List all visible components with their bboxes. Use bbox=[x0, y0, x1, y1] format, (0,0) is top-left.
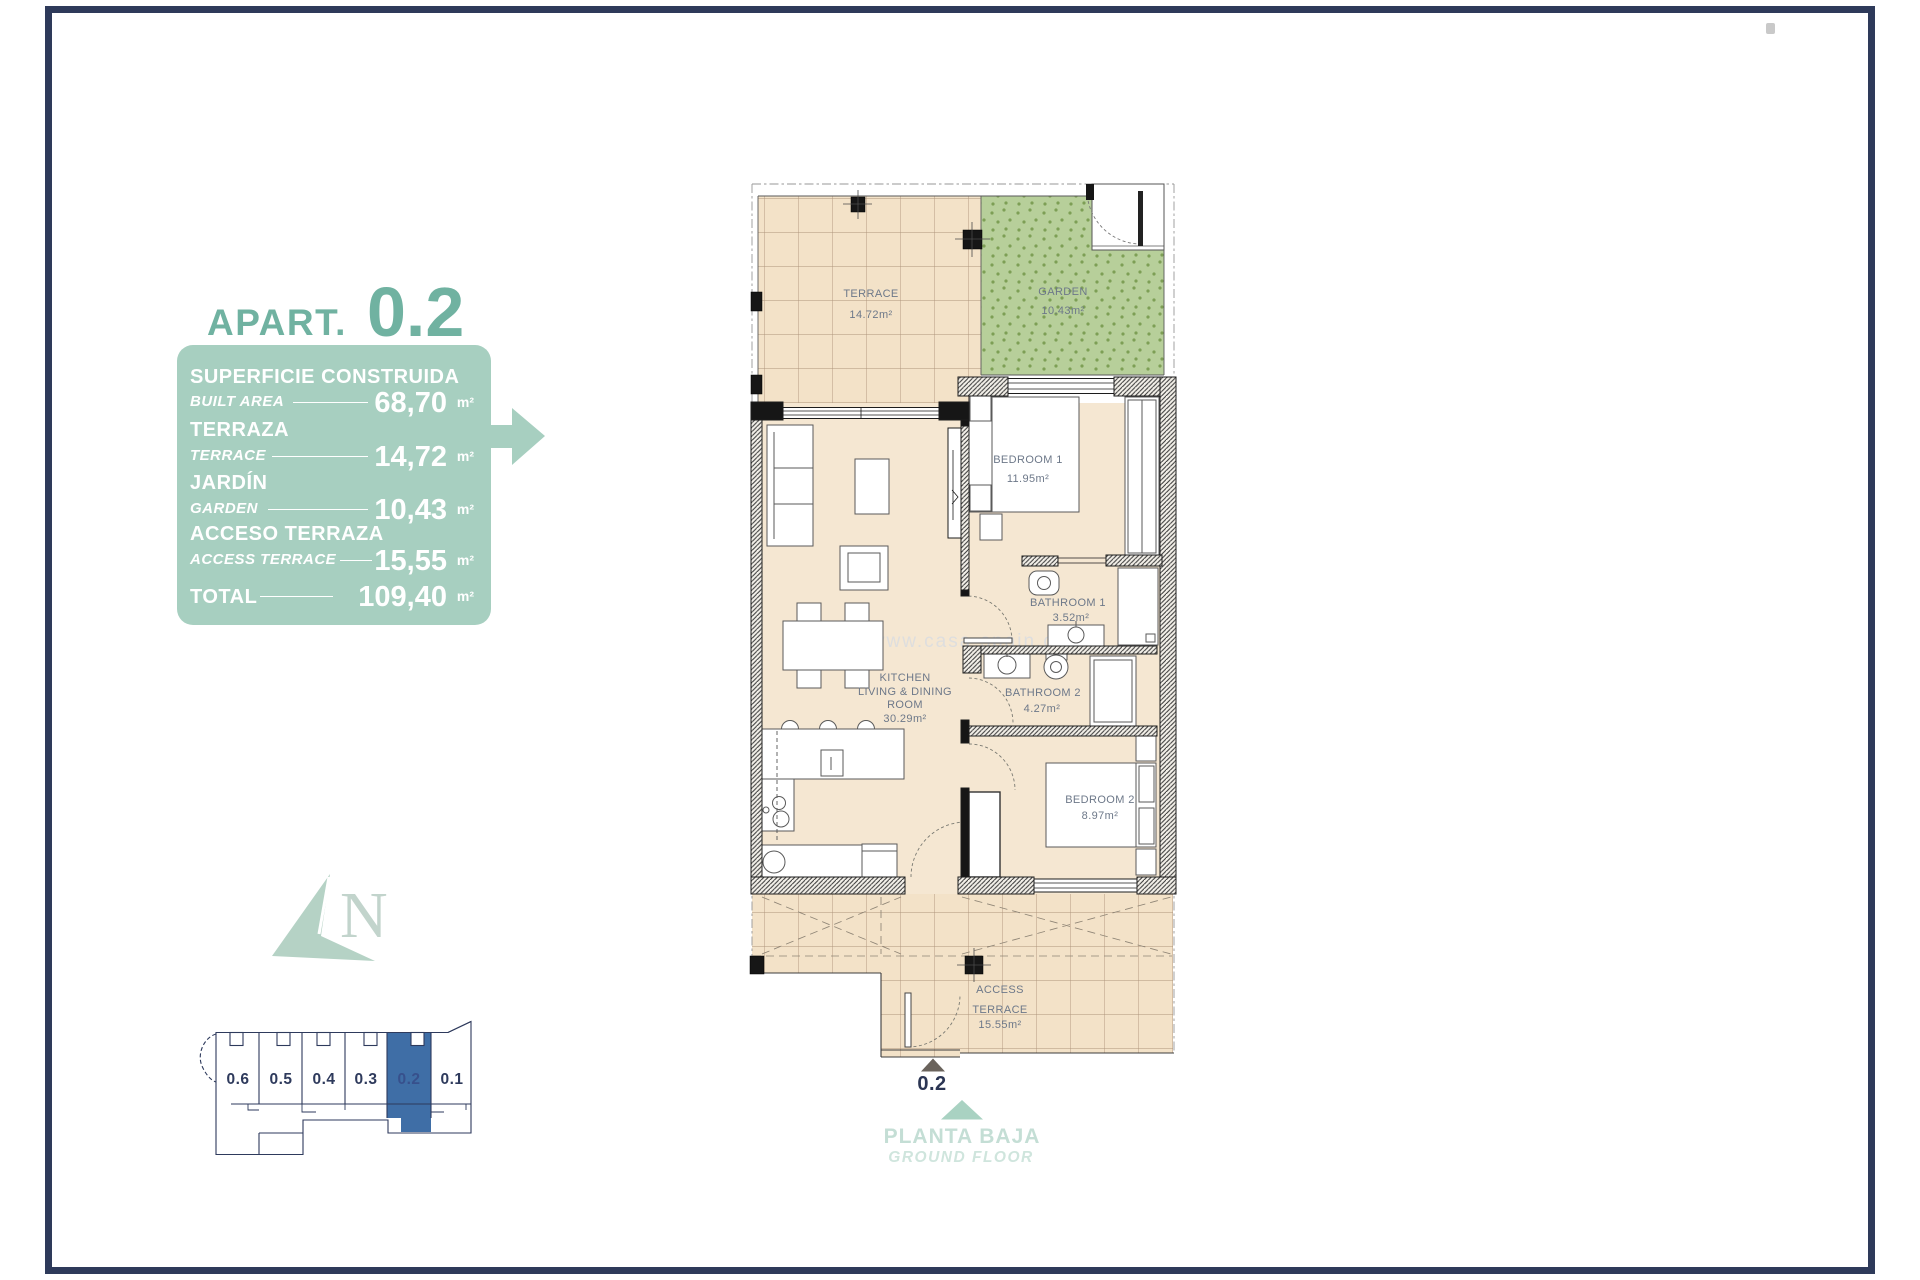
svg-text:0.2: 0.2 bbox=[917, 1073, 946, 1095]
svg-text:0.5: 0.5 bbox=[269, 1071, 292, 1088]
svg-text:0.3: 0.3 bbox=[354, 1071, 377, 1088]
svg-text:BATHROOM 2: BATHROOM 2 bbox=[1005, 687, 1081, 699]
svg-text:TERRACE: TERRACE bbox=[972, 1004, 1027, 1016]
svg-text:GROUND FLOOR: GROUND FLOOR bbox=[888, 1149, 1033, 1166]
svg-text:11.95m²: 11.95m² bbox=[1007, 473, 1049, 485]
svg-text:ACCESS: ACCESS bbox=[976, 984, 1024, 996]
svg-text:14.72m²: 14.72m² bbox=[849, 309, 892, 321]
svg-text:4.27m²: 4.27m² bbox=[1024, 703, 1061, 715]
svg-text:0.1: 0.1 bbox=[440, 1071, 463, 1088]
svg-text:BEDROOM 1: BEDROOM 1 bbox=[993, 454, 1063, 466]
svg-text:0.4: 0.4 bbox=[312, 1071, 335, 1088]
svg-text:GARDEN: GARDEN bbox=[1038, 286, 1087, 298]
svg-text:30.29m²: 30.29m² bbox=[883, 713, 926, 725]
svg-text:3.52m²: 3.52m² bbox=[1053, 612, 1090, 624]
svg-text:KITCHEN: KITCHEN bbox=[879, 672, 930, 684]
svg-text:10.43m²: 10.43m² bbox=[1041, 305, 1084, 317]
svg-text:0.6: 0.6 bbox=[226, 1071, 249, 1088]
svg-text:0.2: 0.2 bbox=[397, 1071, 420, 1088]
svg-text:8.97m²: 8.97m² bbox=[1082, 810, 1119, 822]
svg-text:BEDROOM 2: BEDROOM 2 bbox=[1065, 794, 1135, 806]
svg-text:15.55m²: 15.55m² bbox=[978, 1019, 1021, 1031]
svg-text:BATHROOM 1: BATHROOM 1 bbox=[1030, 597, 1106, 609]
svg-text:TERRACE: TERRACE bbox=[843, 288, 898, 300]
svg-text:ROOM: ROOM bbox=[887, 699, 923, 711]
svg-text:N: N bbox=[340, 879, 388, 952]
svg-text:PLANTA BAJA: PLANTA BAJA bbox=[884, 1125, 1041, 1148]
svg-text:LIVING & DINING: LIVING & DINING bbox=[858, 686, 952, 698]
